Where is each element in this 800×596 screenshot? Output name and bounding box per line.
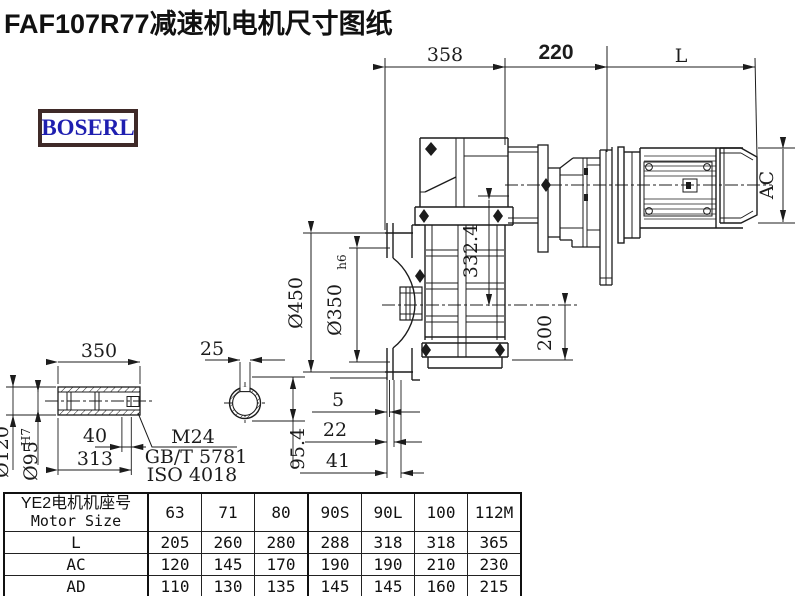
cell-L-90L: 318 [362,532,415,554]
cell-L-63: 205 [148,532,202,554]
table-row-L: L 205 260 280 288 318 318 365 [4,532,521,554]
col-header-63: 63 [148,493,202,532]
row-label-AD: AD [4,576,148,596]
thread-std-2: ISO 4018 [147,464,238,486]
col-header-80: 80 [255,493,309,532]
dim-motor-od-label: AC [756,171,778,200]
cell-AD-90S: 145 [308,576,362,596]
cell-AC-63: 120 [148,554,202,576]
cell-AD-71: 130 [202,576,255,596]
input-unit-view [508,145,612,285]
dim-key-width: 25 [200,338,224,360]
dim-spigot-tol: h6 [335,254,349,269]
cell-L-100: 318 [415,532,468,554]
row-label-L: L [4,532,148,554]
dim-bore-tol: H7 [19,428,33,446]
motor-fins [644,156,716,219]
col-header-100: 100 [415,493,468,532]
cell-AC-100: 210 [415,554,468,576]
dim-bore: Ø95 [20,441,42,481]
cell-AC-71: 145 [202,554,255,576]
fan-cowl [720,148,757,223]
dim-thread-depth: 40 [83,425,107,447]
dim-220: 220 [538,41,573,64]
dim-axial-2: 22 [323,419,347,441]
dim-axial-1: 5 [332,389,344,411]
cell-L-71: 260 [202,532,255,554]
cell-L-90S: 288 [308,532,362,554]
dim-shaft-od: Ø120 [0,426,13,478]
table-row-AC: AC 120 145 170 190 190 210 230 [4,554,521,576]
dim-L: L [675,45,688,67]
dim-center-height-label: 332.4 [460,224,482,278]
table-header-en: Motor Size [5,513,147,530]
cell-AD-90L: 145 [362,576,415,596]
cell-AC-112M: 230 [468,554,522,576]
drawing-page: FAF107R77减速机电机尺寸图纸 BOSERL [0,0,800,596]
thread-note: M24 [171,426,215,448]
dim-shaft-len: 350 [81,340,117,362]
cell-AC-90L: 190 [362,554,415,576]
dim-flange-diameters [303,233,390,372]
table-header-cn: YE2电机机座号 [5,495,147,513]
dim-spigot: Ø350 [324,284,346,336]
col-header-90S: 90S [308,493,362,532]
cell-AC-80: 170 [255,554,309,576]
dim-key-height: 95.4 [287,428,309,470]
cell-AD-112M: 215 [468,576,522,596]
shaft-section-view [230,387,261,419]
col-header-71: 71 [202,493,255,532]
cell-AD-80: 135 [255,576,309,596]
dim-bore-len: 313 [77,448,113,470]
table-row-AD: AD 110 130 135 145 145 160 215 [4,576,521,596]
dim-358: 358 [427,44,463,66]
dim-flange-od: Ø450 [285,277,307,329]
dim-axial-stack [300,380,424,478]
dim-axial-3: 41 [326,450,350,472]
centerlines [45,185,772,424]
col-header-90L: 90L [362,493,415,532]
col-header-112M: 112M [468,493,522,532]
cell-AD-63: 110 [148,576,202,596]
motor-size-table: YE2电机机座号 Motor Size 63 71 80 90S 90L 100… [3,492,522,596]
row-label-AC: AC [4,554,148,576]
dim-base-height-label: 200 [534,315,556,351]
cell-L-112M: 365 [468,532,522,554]
cell-AD-100: 160 [415,576,468,596]
table-header-label: YE2电机机座号 Motor Size [4,493,148,532]
cell-AC-90S: 190 [308,554,362,576]
cell-L-80: 280 [255,532,309,554]
